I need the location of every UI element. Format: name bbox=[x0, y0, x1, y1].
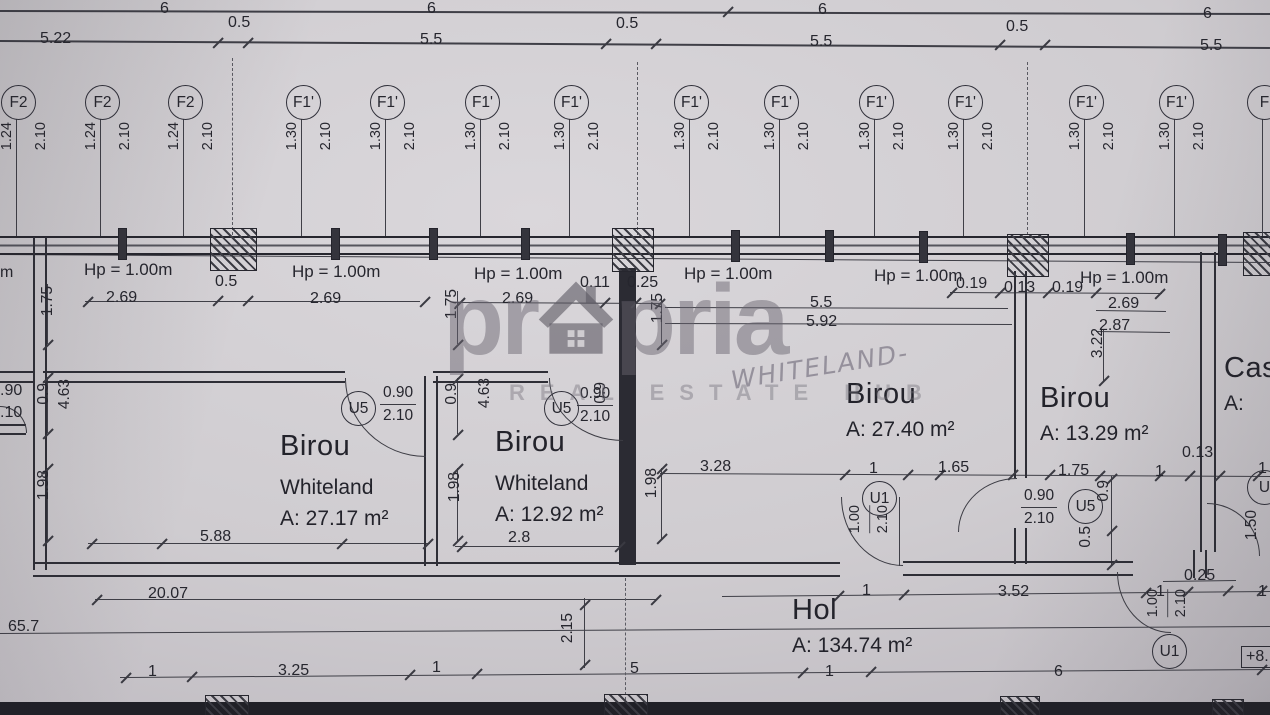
floor-plan-photo: F21.242.10F21.242.10F21.242.10F1'1.302.1… bbox=[0, 0, 1270, 715]
door-size-label: 0.902.10 bbox=[1021, 486, 1057, 529]
room-name: Cas bbox=[1224, 352, 1270, 385]
room-area: A: 13.29 m² bbox=[1040, 422, 1149, 446]
dim-label: 5.5 bbox=[810, 33, 832, 51]
window-tag-circle: F2 bbox=[168, 85, 203, 120]
tick-mark bbox=[419, 296, 430, 307]
dim-label: 1.75 bbox=[650, 293, 666, 323]
wall bbox=[1014, 271, 1027, 478]
dim-label: 1 bbox=[1258, 460, 1267, 478]
door-height: 2.10 bbox=[876, 505, 891, 533]
room-tenant: Whiteland bbox=[495, 472, 604, 496]
window-size-label: 1.302.10 bbox=[369, 122, 417, 150]
dim-label: 5.22 bbox=[40, 30, 71, 48]
dim-label: 2.15 bbox=[560, 613, 576, 643]
leader-line bbox=[1262, 119, 1263, 236]
window-tag-circle: F1' bbox=[674, 85, 709, 120]
level-badge: +8. bbox=[1241, 646, 1270, 668]
window-size-label: 1.302.10 bbox=[858, 122, 906, 150]
window-size-label: 1.302.10 bbox=[285, 122, 333, 150]
room-area: A: bbox=[1224, 392, 1270, 416]
dimension-line bbox=[665, 307, 1008, 309]
wall bbox=[424, 376, 438, 566]
room-name: Birou bbox=[846, 378, 955, 411]
room-name: Birou bbox=[280, 430, 389, 463]
parapet-height-label: Hp = 1.00m bbox=[874, 266, 962, 286]
window-size-label: 1.302.10 bbox=[1158, 122, 1206, 150]
wall bbox=[33, 562, 840, 577]
window-size-label: 1.242.10 bbox=[0, 122, 48, 150]
dim-label: 0.5 bbox=[228, 14, 250, 32]
door-height: 2.10 bbox=[577, 406, 613, 427]
room-area: A: 27.40 m² bbox=[846, 418, 955, 442]
dim-label: 5 bbox=[630, 660, 639, 678]
axis-dashed-line bbox=[637, 62, 638, 235]
door-tag-circle: U5 bbox=[544, 391, 579, 426]
window-mullion bbox=[331, 228, 340, 260]
window-size-label: 1.302.10 bbox=[553, 122, 601, 150]
dim-label: 1 bbox=[148, 663, 157, 681]
window-height: 2.10 bbox=[498, 122, 513, 150]
door-height: 2.10 bbox=[380, 405, 416, 426]
door-size-label: 1.002.10 bbox=[1146, 589, 1188, 617]
room-name: Hol bbox=[792, 594, 912, 627]
dim-label: 6 bbox=[818, 1, 827, 19]
dimension-line bbox=[88, 543, 430, 544]
window-mullion bbox=[731, 230, 740, 262]
dim-label: 0.25 bbox=[627, 274, 658, 292]
window-tag-circle: F1' bbox=[286, 85, 321, 120]
dim-label: 6 bbox=[160, 0, 169, 18]
dim-label: 3.25 bbox=[278, 662, 309, 680]
window-size-label: 1.242.10 bbox=[167, 122, 215, 150]
dimension-line bbox=[0, 626, 1270, 634]
dim-label: 1.75 bbox=[40, 286, 56, 316]
wall bbox=[1014, 528, 1027, 564]
window-tag-circle: F2 bbox=[1, 85, 36, 120]
dim-label: 0.11 bbox=[580, 274, 610, 292]
window-width: 1.30 bbox=[858, 122, 873, 150]
parapet-height-label: Hp = 1.00m bbox=[292, 262, 380, 282]
window-height: 2.10 bbox=[707, 122, 722, 150]
window-height: 2.10 bbox=[797, 122, 812, 150]
dim-label: m bbox=[0, 264, 13, 282]
parapet-height-label: Hp = 1.00m bbox=[1080, 268, 1168, 288]
hatched-column bbox=[1000, 696, 1040, 715]
window-height: 2.10 bbox=[1192, 122, 1207, 150]
hatched-column bbox=[1007, 234, 1049, 277]
dim-label: 2.69 bbox=[1108, 295, 1139, 313]
dimension-line bbox=[0, 40, 1270, 48]
window-size-label: 1.302.10 bbox=[464, 122, 512, 150]
room-label: BirouA: 13.29 m² bbox=[1040, 382, 1149, 446]
window-size-label: 1.302.10 bbox=[673, 122, 721, 150]
window-width: 1.24 bbox=[84, 122, 99, 150]
parapet-height-label: Hp = 1.00m bbox=[684, 264, 772, 284]
dim-label: 2.69 bbox=[502, 290, 533, 308]
dimension-line bbox=[455, 546, 624, 547]
dim-label: 6 bbox=[1203, 5, 1212, 23]
dim-label: 4.63 bbox=[477, 378, 493, 408]
door-width: 0.90 bbox=[1021, 486, 1057, 508]
dim-label: 0.5 bbox=[616, 15, 638, 33]
dimension-line bbox=[584, 598, 585, 668]
wall bbox=[43, 371, 345, 383]
dim-label: 3.22 bbox=[1090, 328, 1106, 358]
dim-label: 0.9 bbox=[1096, 480, 1112, 502]
window-height: 2.10 bbox=[981, 122, 996, 150]
dim-label: 5.5 bbox=[1200, 37, 1222, 55]
window-height: 2.10 bbox=[1102, 122, 1117, 150]
window-tag-circle: F1' bbox=[554, 85, 589, 120]
room-area: A: 27.17 m² bbox=[280, 507, 389, 531]
dim-label: 0.25 bbox=[1184, 567, 1215, 585]
window-mullion bbox=[1126, 233, 1135, 265]
dim-label: 0.13 bbox=[1182, 444, 1213, 462]
window-tag-circle: F1' bbox=[1159, 85, 1194, 120]
dim-label: 2.8 bbox=[508, 529, 530, 547]
window-height: 2.10 bbox=[118, 122, 133, 150]
window-width: 1.30 bbox=[369, 122, 384, 150]
room-name: Birou bbox=[495, 426, 604, 459]
dim-label: 0.5 bbox=[1006, 18, 1028, 36]
dim-label: 1.65 bbox=[938, 459, 969, 477]
window-height: 2.10 bbox=[34, 122, 49, 150]
dim-label: 4.63 bbox=[57, 379, 73, 409]
dim-label: 2.69 bbox=[106, 289, 137, 307]
hatched-column bbox=[205, 695, 249, 715]
dim-label: 1.75 bbox=[444, 289, 460, 319]
door-size-label: 1.002.10 bbox=[848, 505, 890, 533]
hatched-column bbox=[210, 228, 257, 271]
dim-label: 6 bbox=[427, 0, 436, 18]
window-width: 1.30 bbox=[285, 122, 300, 150]
dim-label: 1 bbox=[432, 659, 441, 677]
door-height: 2.10 bbox=[1174, 589, 1189, 617]
window-width: 1.30 bbox=[1158, 122, 1173, 150]
dim-label: 5.88 bbox=[200, 528, 231, 546]
dim-label: 3.28 bbox=[700, 458, 731, 476]
room-label: BirouA: 27.40 m² bbox=[846, 378, 955, 442]
room-area: A: 134.74 m² bbox=[792, 634, 912, 658]
door-height: 2.10 bbox=[1021, 508, 1057, 529]
window-height: 2.10 bbox=[201, 122, 216, 150]
window-width: 1.30 bbox=[1068, 122, 1083, 150]
room-label: CasA: bbox=[1224, 352, 1270, 416]
dim-label: 20.07 bbox=[148, 585, 188, 603]
window-size-label: 1.302.10 bbox=[1068, 122, 1116, 150]
dim-label: 1.75 bbox=[1058, 462, 1089, 480]
parapet-height-label: Hp = 1.00m bbox=[474, 264, 562, 284]
window-tag-circle: F1' bbox=[859, 85, 894, 120]
dim-label: 6 bbox=[1054, 663, 1063, 681]
window-height: 2.10 bbox=[587, 122, 602, 150]
window-size-label: 1.242.10 bbox=[84, 122, 132, 150]
dim-label: 0.13 bbox=[1004, 279, 1035, 297]
dim-label: 0.9 bbox=[36, 383, 52, 405]
dim-label: 1 bbox=[1156, 583, 1165, 601]
window-mullion bbox=[919, 231, 928, 263]
window-mullion bbox=[118, 228, 127, 260]
window-size-label: 1.302.10 bbox=[947, 122, 995, 150]
room-tenant: Whiteland bbox=[280, 476, 389, 500]
dim-label: 3.52 bbox=[998, 583, 1029, 601]
dim-label: 5.5 bbox=[810, 294, 832, 312]
window-tag-circle: F1' bbox=[370, 85, 405, 120]
dim-label: 1 bbox=[825, 663, 834, 681]
window-height: 2.10 bbox=[403, 122, 418, 150]
room-label: HolA: 134.74 m² bbox=[792, 594, 912, 658]
dimension-line bbox=[665, 323, 1012, 325]
dim-label: 2.69 bbox=[310, 290, 341, 308]
hatched-column bbox=[612, 228, 654, 272]
door-tag-circle: U1 bbox=[1152, 634, 1187, 669]
room-area: A: 12.92 m² bbox=[495, 503, 604, 527]
dim-label: 5.92 bbox=[806, 313, 837, 331]
wall bbox=[903, 561, 1133, 576]
window-tag-circle: F1' bbox=[465, 85, 500, 120]
dim-label: 0.9 bbox=[444, 383, 460, 405]
window-height: 2.10 bbox=[892, 122, 907, 150]
dim-label: 0.5 bbox=[215, 273, 237, 291]
dim-label: .90 bbox=[0, 382, 22, 400]
door-size-label: 0.902.10 bbox=[380, 383, 416, 426]
window-tag-circle: F1' bbox=[948, 85, 983, 120]
dim-label: 1 bbox=[1155, 463, 1164, 481]
window-width: 1.30 bbox=[553, 122, 568, 150]
window-width: 1.30 bbox=[464, 122, 479, 150]
window-size-label: 1.302.10 bbox=[763, 122, 811, 150]
window-width: 1.30 bbox=[763, 122, 778, 150]
hatched-column bbox=[1212, 699, 1244, 715]
floor-plan-drawing: F21.242.10F21.242.10F21.242.10F1'1.302.1… bbox=[0, 0, 1270, 715]
door-tag-circle: U5 bbox=[341, 391, 376, 426]
window-tag-circle: F1' bbox=[1069, 85, 1104, 120]
dimension-line bbox=[661, 468, 662, 540]
window-width: 1.30 bbox=[947, 122, 962, 150]
window-mullion bbox=[825, 230, 834, 262]
dim-label: 0.5 bbox=[1078, 526, 1094, 548]
dim-label: 5.5 bbox=[420, 31, 442, 49]
tick-mark bbox=[212, 37, 223, 48]
dim-label: 0.19 bbox=[956, 275, 987, 293]
window-width: 1.24 bbox=[167, 122, 182, 150]
dimension-line bbox=[0, 10, 1270, 14]
axis-dashed-line bbox=[625, 578, 626, 700]
parapet-height-label: Hp = 1.00m bbox=[84, 260, 172, 280]
dim-label: 0.9 bbox=[593, 382, 609, 404]
dim-label: .10 bbox=[0, 404, 22, 422]
room-label: BirouWhitelandA: 12.92 m² bbox=[495, 426, 604, 527]
door-swing-arc bbox=[958, 478, 1017, 532]
axis-dashed-line bbox=[232, 58, 233, 235]
dim-label: 1.98 bbox=[36, 470, 52, 500]
window-tag-circle: F2 bbox=[85, 85, 120, 120]
dim-label: 1 bbox=[1258, 583, 1267, 601]
window-height: 2.10 bbox=[319, 122, 334, 150]
room-label: BirouWhitelandA: 27.17 m² bbox=[280, 430, 389, 531]
window-width: 1.24 bbox=[0, 122, 15, 150]
room-name: Birou bbox=[1040, 382, 1149, 415]
window-mullion bbox=[1218, 234, 1227, 266]
door-width: 0.90 bbox=[380, 383, 416, 405]
window-tag-circle: F bbox=[1247, 85, 1270, 120]
hatched-column bbox=[1243, 232, 1270, 276]
door-width: 1.00 bbox=[848, 505, 863, 533]
dim-label: 0.19 bbox=[1052, 279, 1083, 297]
dim-label: 1.50 bbox=[1244, 510, 1260, 540]
axis-dashed-line bbox=[1027, 62, 1028, 235]
dim-label: 1.98 bbox=[447, 472, 463, 502]
window-mullion bbox=[429, 228, 438, 260]
dim-label: 65.7 bbox=[8, 618, 39, 636]
window-width: 1.30 bbox=[673, 122, 688, 150]
window-mullion bbox=[521, 228, 530, 260]
window-tag-circle: F1' bbox=[764, 85, 799, 120]
hatched-column bbox=[604, 694, 648, 715]
dim-label: 1 bbox=[869, 460, 878, 478]
dim-label: 1.98 bbox=[644, 468, 660, 498]
